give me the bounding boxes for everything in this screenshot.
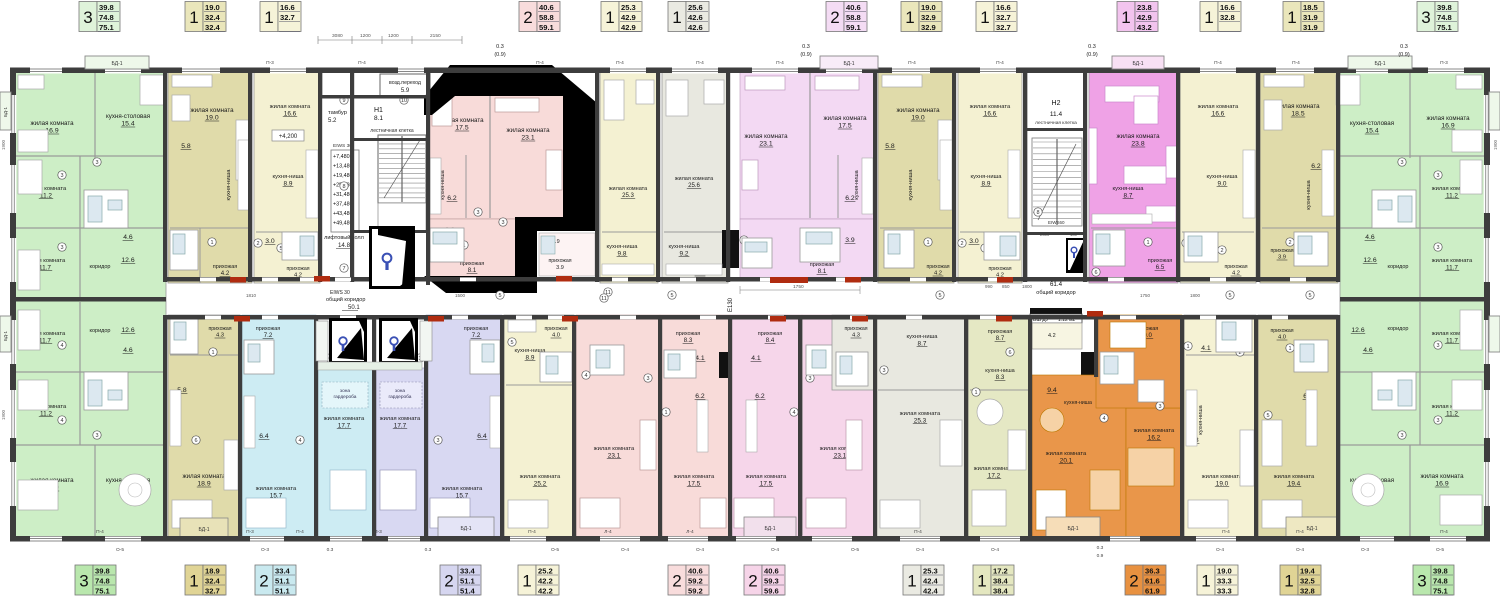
svg-text:25.3: 25.3 — [622, 192, 634, 199]
svg-text:4.6: 4.6 — [1365, 234, 1375, 241]
svg-text:П-3: П-3 — [246, 529, 254, 535]
svg-text:18.9: 18.9 — [197, 481, 210, 488]
svg-text:1: 1 — [1201, 572, 1210, 591]
svg-text:9.4: 9.4 — [1047, 387, 1057, 394]
svg-text:П-4: П-4 — [776, 60, 784, 66]
svg-text:1800: 1800 — [1190, 293, 1201, 298]
svg-text:1: 1 — [926, 240, 929, 246]
svg-text:2: 2 — [256, 241, 259, 247]
svg-text:19.0: 19.0 — [205, 3, 220, 12]
svg-text:0.3: 0.3 — [496, 44, 504, 50]
svg-text:жилая комната: жилая комната — [324, 416, 365, 422]
svg-text:9.2: 9.2 — [680, 250, 689, 257]
svg-text:38.4: 38.4 — [993, 577, 1009, 586]
svg-text:40.6: 40.6 — [764, 567, 779, 576]
svg-text:кухня-ниша: кухня-ниша — [1198, 404, 1204, 434]
svg-text:жилая комната: жилая комната — [1276, 103, 1320, 110]
svg-text:зона: зона — [395, 389, 405, 394]
svg-text:33.4: 33.4 — [460, 567, 476, 576]
svg-text:6.2: 6.2 — [1311, 163, 1321, 170]
svg-text:(0.9): (0.9) — [1086, 52, 1097, 58]
svg-text:39.8: 39.8 — [99, 3, 114, 12]
svg-text:жилая комната: жилая комната — [1274, 474, 1315, 480]
svg-text:(0.9): (0.9) — [1398, 52, 1409, 58]
svg-text:0.3: 0.3 — [1097, 545, 1104, 551]
svg-text:17.7: 17.7 — [338, 422, 351, 429]
svg-text:4: 4 — [584, 373, 587, 379]
svg-text:59.1: 59.1 — [846, 23, 862, 32]
svg-text:6.4: 6.4 — [259, 433, 269, 440]
svg-text:О-5: О-5 — [1436, 547, 1444, 553]
svg-text:П-4: П-4 — [1222, 529, 1230, 535]
svg-text:H1: H1 — [374, 107, 383, 114]
svg-text:кухня-ниша: кухня-ниша — [908, 169, 914, 201]
svg-text:74.8: 74.8 — [1433, 577, 1448, 586]
svg-text:3: 3 — [501, 220, 504, 226]
svg-text:1810: 1810 — [246, 293, 257, 298]
svg-text:11: 11 — [601, 296, 607, 302]
svg-text:общий коридор: общий коридор — [1036, 289, 1075, 296]
svg-text:25.6: 25.6 — [688, 182, 700, 189]
svg-text:9.0: 9.0 — [1218, 180, 1227, 187]
svg-text:EIWS60: EIWS60 — [1048, 220, 1065, 225]
svg-text:1: 1 — [211, 350, 214, 356]
svg-text:42.6: 42.6 — [688, 23, 703, 32]
svg-text:3080: 3080 — [332, 33, 343, 39]
svg-text:жилая комната: жилая комната — [1420, 473, 1464, 480]
svg-text:1: 1 — [1287, 8, 1296, 27]
svg-text:жилая комната: жилая комната — [594, 446, 635, 452]
svg-text:15.4: 15.4 — [1365, 128, 1378, 135]
svg-text:жилая комната: жилая комната — [190, 107, 234, 114]
svg-text:кухня-ниша: кухня-ниша — [226, 169, 232, 201]
svg-text:2: 2 — [830, 8, 839, 27]
svg-text:8.1: 8.1 — [818, 268, 827, 275]
svg-text:11.4: 11.4 — [1050, 111, 1063, 118]
svg-text:6: 6 — [194, 438, 197, 444]
svg-text:990: 990 — [985, 284, 993, 289]
svg-text:4.2: 4.2 — [221, 270, 230, 277]
svg-text:П-3: П-3 — [266, 60, 274, 66]
svg-text:25.6: 25.6 — [688, 3, 703, 12]
svg-text:75.1: 75.1 — [1433, 587, 1449, 596]
svg-text:4.2: 4.2 — [1048, 333, 1056, 339]
svg-text:38.4: 38.4 — [993, 587, 1009, 596]
svg-text:прихожая: прихожая — [1224, 264, 1247, 270]
svg-text:БД-1: БД-1 — [843, 61, 854, 67]
svg-text:1: 1 — [907, 572, 916, 591]
svg-text:42.6: 42.6 — [688, 13, 703, 22]
svg-text:1: 1 — [210, 240, 213, 246]
svg-text:33.4: 33.4 — [275, 567, 291, 576]
svg-text:4.6: 4.6 — [1363, 347, 1373, 354]
svg-text:кухня-ниша: кухня-ниша — [607, 244, 639, 250]
svg-text:4.1: 4.1 — [1201, 345, 1211, 352]
svg-text:прихожая: прихожая — [844, 326, 867, 332]
svg-text:1: 1 — [1288, 346, 1291, 352]
svg-text:10: 10 — [401, 98, 407, 104]
svg-text:жилая комната: жилая комната — [896, 107, 940, 114]
svg-text:75.1: 75.1 — [1437, 23, 1453, 32]
svg-text:+19,480: +19,480 — [333, 173, 353, 179]
svg-text:7.2: 7.2 — [264, 332, 273, 339]
svg-text:кухня-ниша: кухня-ниша — [1306, 179, 1312, 209]
svg-text:16.6: 16.6 — [996, 3, 1011, 12]
svg-text:6.2: 6.2 — [845, 195, 855, 202]
svg-text:5.8: 5.8 — [885, 143, 895, 150]
svg-text:Л-4: Л-4 — [686, 529, 694, 535]
svg-text:3: 3 — [95, 160, 98, 166]
svg-text:1: 1 — [664, 410, 667, 416]
svg-text:4: 4 — [1102, 416, 1105, 422]
svg-text:5.9: 5.9 — [401, 88, 410, 94]
svg-text:тамбур: тамбур — [328, 110, 347, 116]
svg-text:жилая комната: жилая комната — [674, 474, 715, 480]
svg-text:О-4: О-4 — [621, 547, 629, 553]
svg-text:32.7: 32.7 — [996, 13, 1011, 22]
svg-text:1: 1 — [522, 572, 531, 591]
svg-text:17.5: 17.5 — [760, 480, 773, 487]
svg-text:12.6: 12.6 — [121, 257, 134, 264]
svg-text:лестничная клетка: лестничная клетка — [370, 128, 414, 134]
svg-text:3: 3 — [1436, 245, 1439, 251]
svg-text:3: 3 — [1158, 404, 1161, 410]
svg-text:8.4: 8.4 — [766, 337, 775, 344]
svg-text:прихожая: прихожая — [926, 264, 949, 270]
svg-text:31.9: 31.9 — [1303, 23, 1318, 32]
svg-text:БД-1: БД-1 — [1067, 526, 1078, 532]
svg-text:1500: 1500 — [455, 293, 466, 298]
svg-text:1800: 1800 — [1022, 284, 1033, 289]
svg-text:5: 5 — [938, 293, 941, 299]
svg-text:1: 1 — [264, 8, 273, 27]
svg-text:20.1: 20.1 — [1060, 457, 1073, 464]
svg-text:1: 1 — [905, 8, 914, 27]
svg-text:О-4: О-4 — [1296, 547, 1304, 553]
svg-text:17.2: 17.2 — [988, 472, 1001, 479]
svg-text:5: 5 — [498, 293, 501, 299]
svg-text:42.9: 42.9 — [621, 23, 636, 32]
svg-text:1: 1 — [974, 390, 977, 396]
svg-text:О-5: О-5 — [851, 547, 859, 553]
svg-text:19.0: 19.0 — [911, 115, 924, 122]
svg-text:3.0: 3.0 — [265, 238, 275, 245]
svg-text:51.1: 51.1 — [460, 577, 476, 586]
svg-text:БД-1: БД-1 — [111, 61, 122, 67]
svg-text:+13,480: +13,480 — [333, 164, 353, 170]
svg-text:кухня-ниша: кухня-ниша — [1207, 174, 1239, 180]
svg-text:75.1: 75.1 — [95, 587, 111, 596]
svg-text:2: 2 — [1220, 248, 1223, 254]
svg-text:1900: 1900 — [1493, 139, 1498, 150]
svg-text:23.8: 23.8 — [1137, 3, 1152, 12]
svg-text:1: 1 — [1146, 240, 1149, 246]
svg-text:42.2: 42.2 — [538, 587, 553, 596]
svg-text:4.1: 4.1 — [751, 355, 761, 362]
svg-text:2: 2 — [748, 572, 757, 591]
svg-text:12.6: 12.6 — [1351, 327, 1364, 334]
svg-text:2: 2 — [523, 8, 532, 27]
svg-text:74.8: 74.8 — [1437, 13, 1452, 22]
svg-text:6.4: 6.4 — [477, 433, 487, 440]
svg-text:7.2: 7.2 — [472, 332, 481, 339]
svg-text:58.8: 58.8 — [846, 13, 861, 22]
svg-text:1: 1 — [189, 572, 198, 591]
svg-text:40.6: 40.6 — [846, 3, 861, 12]
svg-text:П-4: П-4 — [536, 60, 544, 66]
svg-text:23.1: 23.1 — [834, 452, 847, 459]
svg-text:3: 3 — [1400, 433, 1403, 439]
svg-text:6.2: 6.2 — [755, 393, 765, 400]
svg-text:1: 1 — [189, 8, 198, 27]
svg-text:51.4: 51.4 — [460, 587, 476, 596]
svg-text:51.1: 51.1 — [275, 587, 291, 596]
svg-text:1: 1 — [672, 8, 681, 27]
svg-text:59.2: 59.2 — [688, 577, 703, 586]
svg-text:0.3: 0.3 — [327, 547, 334, 553]
svg-text:19.0: 19.0 — [921, 3, 936, 12]
svg-text:32.4: 32.4 — [205, 13, 221, 22]
svg-text:жилая комната: жилая комната — [1116, 133, 1160, 140]
svg-text:кухня-ниша: кухня-ниша — [1064, 400, 1092, 406]
svg-text:2: 2 — [672, 572, 681, 591]
svg-text:9.8: 9.8 — [618, 250, 627, 257]
svg-text:11.2: 11.2 — [1446, 192, 1458, 199]
svg-text:25.3: 25.3 — [923, 567, 938, 576]
svg-text:3: 3 — [1436, 173, 1439, 179]
svg-text:3: 3 — [1400, 160, 1403, 166]
svg-text:19.0: 19.0 — [205, 115, 218, 122]
svg-text:25.3: 25.3 — [914, 417, 927, 424]
svg-text:74.8: 74.8 — [95, 577, 110, 586]
svg-text:36.3: 36.3 — [1145, 567, 1160, 576]
svg-text:0.3: 0.3 — [802, 44, 810, 50]
svg-text:3: 3 — [436, 438, 439, 444]
svg-text:кухня-ниша: кухня-ниша — [971, 174, 1003, 180]
svg-text:коридор: коридор — [90, 264, 111, 270]
svg-text:+31,480: +31,480 — [333, 192, 353, 198]
svg-text:5: 5 — [1228, 293, 1231, 299]
svg-text:жилая комната: жилая комната — [1202, 474, 1243, 480]
svg-text:42.4: 42.4 — [923, 577, 939, 586]
svg-text:16.6: 16.6 — [1212, 110, 1225, 117]
svg-text:прихожая: прихожая — [1270, 328, 1293, 334]
svg-text:17.7: 17.7 — [394, 422, 407, 429]
svg-text:850: 850 — [1002, 284, 1010, 289]
svg-text:прихожая: прихожая — [286, 266, 309, 272]
svg-text:18.5: 18.5 — [1303, 3, 1319, 12]
svg-text:6: 6 — [1094, 270, 1097, 276]
svg-text:8.7: 8.7 — [1124, 192, 1133, 199]
svg-text:П-4: П-4 — [1214, 60, 1222, 66]
svg-text:0.3: 0.3 — [425, 547, 432, 553]
svg-text:2: 2 — [1288, 240, 1291, 246]
svg-text:жилая комната: жилая комната — [30, 120, 74, 127]
svg-text:32.9: 32.9 — [921, 13, 936, 22]
svg-text:жилая комната: жилая комната — [380, 416, 421, 422]
svg-text:5: 5 — [1266, 413, 1269, 419]
svg-text:3: 3 — [808, 376, 811, 382]
svg-text:лестничная клетка: лестничная клетка — [1035, 121, 1077, 126]
svg-text:40.6: 40.6 — [688, 567, 703, 576]
svg-text:31.9: 31.9 — [1303, 13, 1318, 22]
svg-text:3: 3 — [60, 245, 63, 251]
svg-text:4.1: 4.1 — [695, 355, 705, 362]
svg-text:59.6: 59.6 — [764, 587, 779, 596]
svg-text:2: 2 — [960, 241, 963, 247]
svg-text:П-4: П-4 — [1440, 529, 1448, 535]
svg-text:жилая комната: жилая комната — [823, 115, 867, 122]
svg-text:8.7: 8.7 — [996, 335, 1005, 342]
svg-text:75.1: 75.1 — [99, 23, 115, 32]
svg-text:коридор: коридор — [1388, 264, 1409, 270]
svg-text:6.2: 6.2 — [695, 393, 705, 400]
svg-text:14.8: 14.8 — [338, 242, 351, 249]
svg-text:П-4: П-4 — [358, 60, 366, 66]
svg-text:61.6: 61.6 — [1145, 577, 1160, 586]
svg-text:23.1: 23.1 — [608, 452, 621, 459]
svg-text:2: 2 — [444, 572, 453, 591]
svg-text:жилая комната: жилая комната — [1134, 428, 1175, 434]
svg-text:23.8: 23.8 — [1131, 141, 1144, 148]
svg-text:П-4: П-4 — [616, 60, 624, 66]
svg-text:11.7: 11.7 — [1446, 337, 1458, 344]
svg-text:О-4: О-4 — [696, 547, 704, 553]
svg-text:32.4: 32.4 — [205, 577, 221, 586]
svg-text:3: 3 — [646, 376, 649, 382]
svg-text:жилая комната: жилая комната — [442, 486, 483, 492]
svg-text:жилая комната: жилая комната — [1432, 258, 1473, 264]
svg-text:О-3: О-3 — [1361, 547, 1369, 553]
svg-text:32.8: 32.8 — [1220, 13, 1235, 22]
svg-text:7: 7 — [342, 266, 345, 272]
svg-text:кухня-ниша: кухня-ниша — [854, 169, 860, 199]
svg-text:19.0: 19.0 — [1216, 480, 1229, 487]
svg-text:8: 8 — [342, 184, 345, 190]
svg-text:О-4: О-4 — [1216, 547, 1224, 553]
svg-text:П-4: П-4 — [908, 60, 916, 66]
svg-text:1200: 1200 — [360, 33, 371, 39]
svg-text:жилая комната: жилая комната — [182, 473, 226, 480]
svg-text:33.3: 33.3 — [1217, 577, 1232, 586]
svg-text:БД-1: БД-1 — [1132, 61, 1143, 67]
svg-text:3: 3 — [476, 210, 479, 216]
svg-text:39.8: 39.8 — [1433, 567, 1448, 576]
svg-text:жилая комната: жилая комната — [1046, 451, 1087, 457]
svg-text:3.9: 3.9 — [556, 265, 564, 271]
svg-text:прихожая: прихожая — [544, 326, 567, 332]
svg-text:жилая комната: жилая комната — [270, 104, 311, 110]
svg-text:32.4: 32.4 — [205, 23, 221, 32]
svg-text:23.1: 23.1 — [759, 141, 772, 148]
svg-text:32.7: 32.7 — [996, 23, 1011, 32]
svg-text:3: 3 — [95, 433, 98, 439]
svg-text:(0.9): (0.9) — [494, 52, 505, 58]
svg-text:кухня-ниша: кухня-ниша — [1113, 186, 1145, 192]
svg-text:H2: H2 — [1052, 100, 1061, 107]
svg-text:жилая комната: жилая комната — [746, 474, 787, 480]
svg-text:кухня-ниша: кухня-ниша — [669, 244, 701, 250]
svg-text:59.3: 59.3 — [764, 577, 779, 586]
svg-text:5: 5 — [1308, 293, 1311, 299]
svg-text:17.5: 17.5 — [838, 123, 851, 130]
svg-text:EIWS 30: EIWS 30 — [333, 143, 352, 149]
svg-text:БД-1: БД-1 — [1306, 526, 1317, 532]
svg-text:3: 3 — [60, 173, 63, 179]
svg-text:прихожая: прихожая — [988, 266, 1011, 272]
svg-text:кухня-столовая: кухня-столовая — [106, 113, 150, 120]
svg-text:П-3: П-3 — [374, 529, 382, 535]
svg-text:6: 6 — [1008, 350, 1011, 356]
svg-text:0.3: 0.3 — [1088, 44, 1096, 50]
svg-text:4.6: 4.6 — [123, 347, 133, 354]
svg-text:П-3: П-3 — [1440, 60, 1448, 66]
svg-text:1: 1 — [1204, 8, 1213, 27]
svg-text:О-5: О-5 — [116, 547, 124, 553]
svg-text:4: 4 — [792, 410, 795, 416]
svg-text:25.2: 25.2 — [534, 480, 547, 487]
svg-text:42.9: 42.9 — [621, 13, 636, 22]
svg-text:61.4: 61.4 — [1050, 281, 1063, 288]
svg-text:П-4: П-4 — [914, 529, 922, 535]
svg-text:1750: 1750 — [1140, 293, 1151, 298]
svg-text:П-4: П-4 — [996, 60, 1004, 66]
svg-text:11.2: 11.2 — [40, 410, 52, 417]
svg-text:12.6: 12.6 — [121, 327, 134, 334]
svg-text:О-4: О-4 — [771, 547, 779, 553]
svg-text:О-4: О-4 — [991, 547, 999, 553]
svg-text:11.7: 11.7 — [39, 264, 51, 271]
svg-text:3: 3 — [1436, 418, 1439, 424]
svg-text:16.6: 16.6 — [284, 110, 297, 117]
svg-text:39.8: 39.8 — [95, 567, 110, 576]
svg-text:4.6: 4.6 — [123, 234, 133, 241]
svg-text:кухня-столовая: кухня-столовая — [1350, 120, 1394, 127]
svg-text:кухня-ниша: кухня-ниша — [907, 334, 939, 340]
svg-text:жилая комната: жилая комната — [970, 104, 1011, 110]
svg-text:23.1: 23.1 — [521, 135, 534, 142]
svg-text:11.7: 11.7 — [39, 337, 51, 344]
svg-text:9: 9 — [342, 98, 345, 104]
svg-text:гардероба: гардероба — [334, 394, 357, 400]
svg-text:2: 2 — [259, 572, 268, 591]
svg-text:17.2: 17.2 — [993, 567, 1008, 576]
svg-text:6.2: 6.2 — [447, 195, 457, 202]
svg-text:74.8: 74.8 — [99, 13, 114, 22]
svg-text:42.2: 42.2 — [538, 577, 553, 586]
svg-text:19.4: 19.4 — [1288, 480, 1301, 487]
svg-text:1900: 1900 — [1, 409, 6, 420]
svg-text:8.1: 8.1 — [374, 115, 383, 122]
svg-text:3.9: 3.9 — [845, 237, 855, 244]
svg-text:О-3: О-3 — [261, 547, 269, 553]
svg-text:2: 2 — [1129, 572, 1138, 591]
svg-text:коридор: коридор — [1388, 326, 1409, 332]
svg-text:1: 1 — [1186, 344, 1189, 350]
svg-text:42.9: 42.9 — [1137, 13, 1152, 22]
svg-text:5: 5 — [510, 340, 513, 346]
svg-text:кухня-ниша: кухня-ниша — [273, 174, 305, 180]
svg-text:П-4: П-4 — [1292, 60, 1300, 66]
svg-text:11.7: 11.7 — [1446, 264, 1458, 271]
svg-text:8.9: 8.9 — [982, 180, 991, 187]
svg-text:О-4: О-4 — [916, 547, 924, 553]
svg-text:+7,480: +7,480 — [333, 154, 350, 160]
svg-text:8.3: 8.3 — [996, 374, 1005, 381]
svg-text:1: 1 — [977, 572, 986, 591]
svg-text:59.1: 59.1 — [539, 23, 555, 32]
svg-text:19.0: 19.0 — [1217, 567, 1232, 576]
